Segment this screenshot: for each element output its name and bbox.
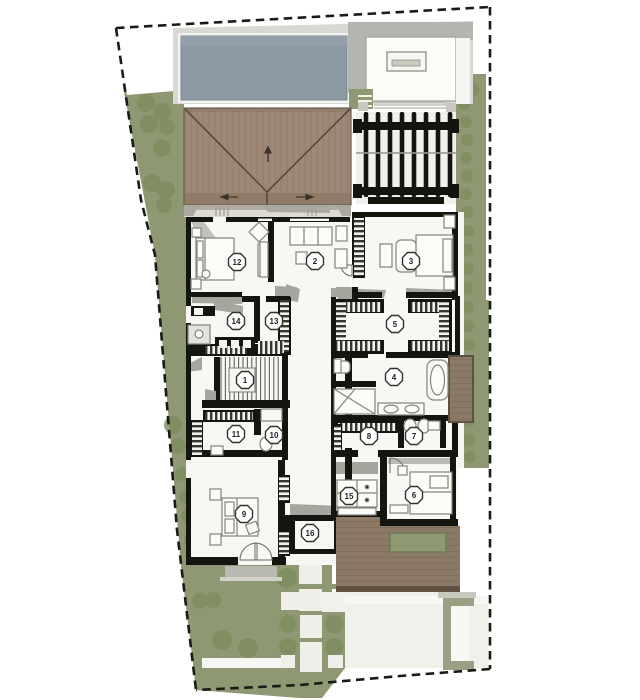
svg-text:10: 10	[270, 431, 279, 440]
svg-text:16: 16	[306, 529, 315, 538]
svg-text:8: 8	[367, 432, 372, 441]
svg-text:5: 5	[393, 320, 398, 329]
svg-text:11: 11	[232, 430, 241, 439]
svg-text:6: 6	[412, 491, 417, 500]
svg-text:14: 14	[232, 317, 241, 326]
svg-text:13: 13	[270, 317, 279, 326]
svg-text:3: 3	[409, 257, 414, 266]
svg-text:7: 7	[412, 432, 417, 441]
svg-text:2: 2	[313, 257, 318, 266]
svg-text:1: 1	[243, 376, 248, 385]
svg-text:4: 4	[392, 373, 397, 382]
svg-text:12: 12	[233, 258, 242, 267]
svg-text:15: 15	[345, 492, 354, 501]
svg-text:9: 9	[242, 510, 247, 519]
